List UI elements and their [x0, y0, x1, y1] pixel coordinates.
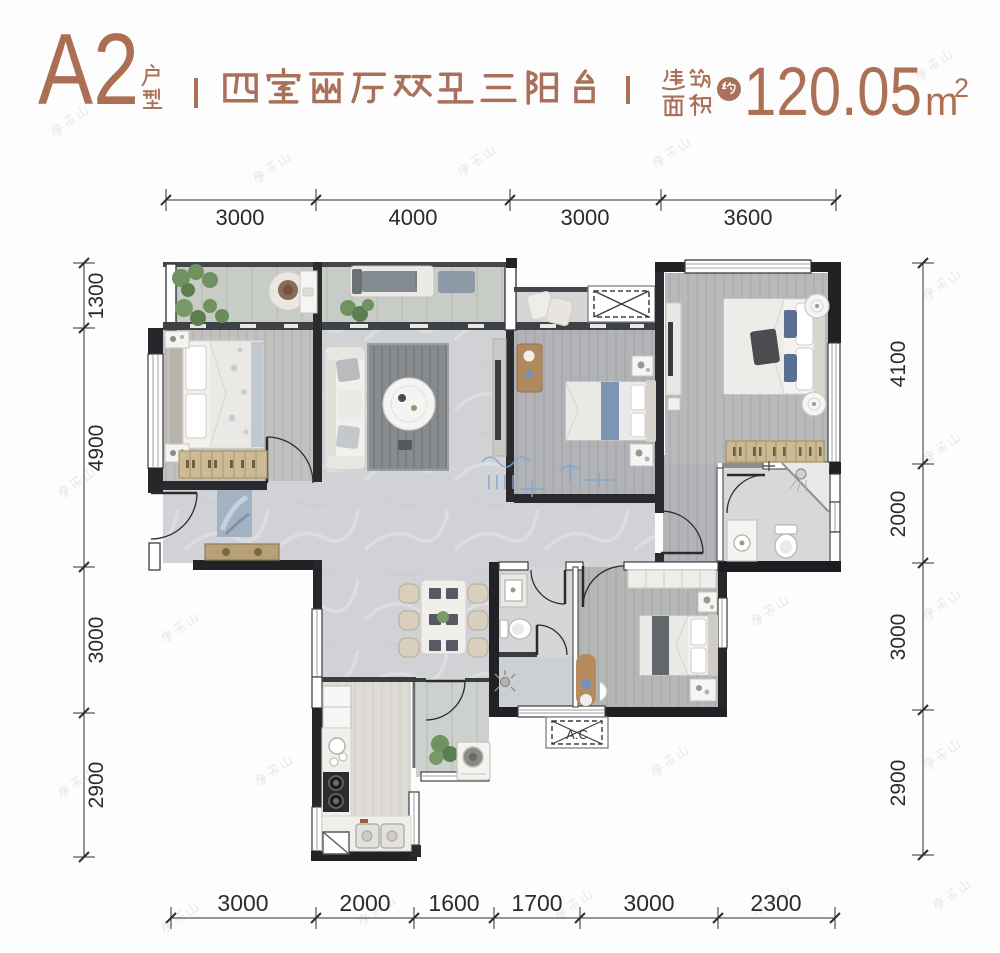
svg-text:4000: 4000: [389, 205, 438, 230]
svg-text:A.C: A.C: [566, 727, 588, 742]
svg-text:3000: 3000: [216, 205, 265, 230]
svg-text:1600: 1600: [428, 890, 479, 916]
svg-text:3000: 3000: [561, 205, 610, 230]
svg-text:2300: 2300: [750, 890, 801, 916]
svg-text:2: 2: [954, 73, 969, 103]
svg-text:3600: 3600: [724, 205, 773, 230]
svg-text:2000: 2000: [339, 890, 390, 916]
svg-text:2900: 2900: [85, 762, 108, 809]
svg-text:3000: 3000: [85, 617, 108, 664]
svg-text:4900: 4900: [85, 425, 108, 472]
svg-text:3000: 3000: [623, 890, 674, 916]
svg-text:3000: 3000: [887, 614, 910, 661]
svg-text:1700: 1700: [511, 890, 562, 916]
svg-text:A2: A2: [38, 14, 139, 126]
svg-text:3000: 3000: [217, 890, 268, 916]
svg-text:4100: 4100: [887, 341, 910, 388]
svg-text:2000: 2000: [887, 491, 910, 538]
svg-text:1300: 1300: [85, 273, 108, 320]
svg-text:2900: 2900: [887, 760, 910, 807]
svg-text:120.05: 120.05: [744, 53, 922, 130]
